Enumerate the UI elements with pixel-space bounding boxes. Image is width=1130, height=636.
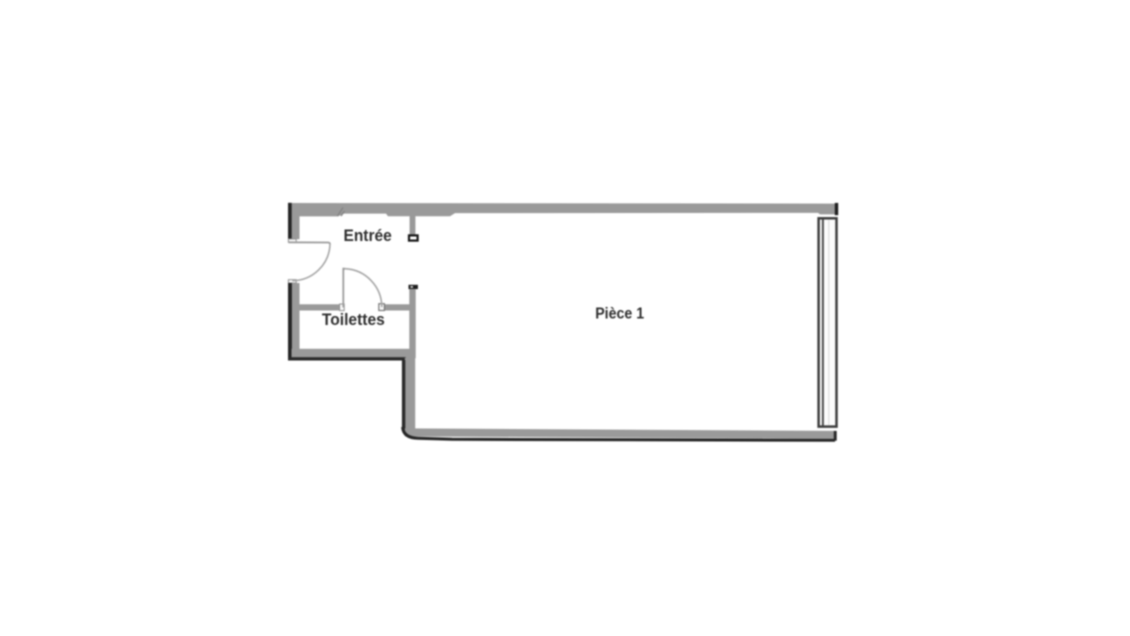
svg-text:Pièce 1: Pièce 1 (595, 306, 644, 323)
svg-text:Toilettes: Toilettes (322, 311, 385, 329)
svg-text:Entrée: Entrée (344, 227, 392, 245)
